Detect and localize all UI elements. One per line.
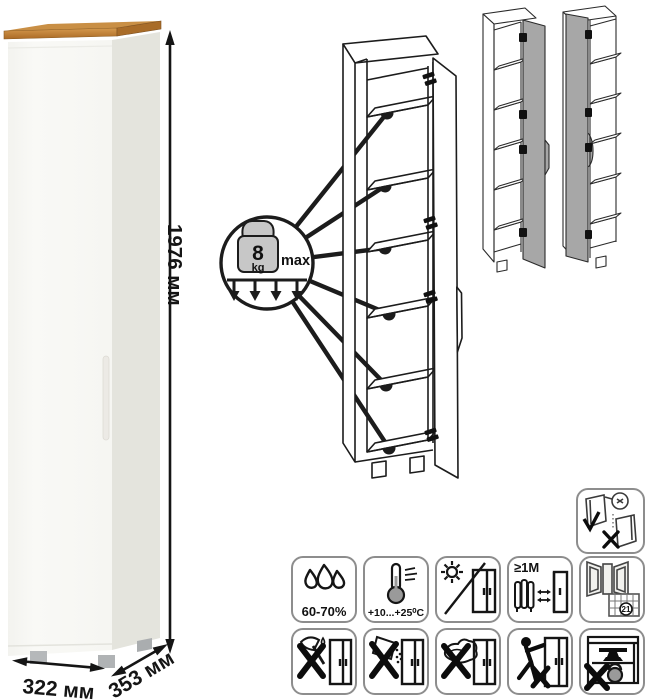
no-dragging-icon — [507, 628, 573, 695]
calendar-day: 21 — [622, 605, 631, 614]
height-dimension-arrow — [165, 30, 174, 654]
no-solvents-icon — [291, 628, 357, 695]
heat-rays — [405, 568, 417, 580]
kettlebell-icon — [608, 664, 622, 682]
door-handle-groove — [103, 356, 109, 440]
radiator-icon — [515, 580, 534, 612]
door-variants — [483, 6, 621, 272]
max-load-callout: 8 kg max — [221, 217, 313, 309]
x-mark — [372, 644, 396, 676]
no-overloading-icon — [579, 628, 645, 695]
cabinet-photo — [4, 21, 161, 668]
x-mark — [587, 666, 607, 688]
sun-icon — [441, 561, 463, 583]
door-panel-correct — [586, 495, 606, 527]
cabinet-leg — [410, 456, 424, 473]
shelf-leader-dots — [379, 107, 396, 455]
max-load-unit: kg — [252, 262, 265, 274]
door-hinged-right-variant — [483, 8, 549, 272]
anvil-icon — [599, 648, 627, 661]
open-door — [433, 58, 462, 478]
door-hinged-left-variant — [563, 6, 621, 268]
no-direct-sunlight-icon — [435, 556, 501, 623]
cabinet-leg — [497, 260, 507, 272]
shelf-load-diagram: 8 kg max — [221, 36, 462, 478]
x-mark — [604, 532, 618, 547]
cabinet-leg — [596, 256, 606, 268]
temperature-range-icon: +10...+25⁰C — [363, 556, 429, 623]
cabinet-side-panel — [112, 32, 160, 650]
max-load-qualifier: max — [281, 253, 310, 269]
open-window-icon — [587, 562, 628, 596]
door-handle — [457, 287, 462, 352]
distance-arrows — [537, 590, 551, 603]
heat-distance-label: ≥1М — [514, 561, 539, 574]
gray-door — [566, 14, 588, 262]
door-alignment-check-icon — [576, 488, 645, 554]
width-dimension-label: 322 мм — [22, 675, 96, 700]
product-sheet: { "product": { "type": "tall-one-door-ca… — [0, 0, 648, 700]
humidity-icon: 60-70% — [291, 556, 357, 623]
x-mark — [444, 646, 468, 676]
wardrobe-glyph — [402, 640, 423, 684]
wardrobe-glyph — [330, 640, 351, 684]
open-cabinet-drawing — [343, 36, 462, 478]
shelf — [367, 96, 436, 452]
wardrobe-glyph — [545, 638, 567, 686]
no-wet-cleaning-icon — [435, 628, 501, 695]
cabinet-leg — [372, 461, 386, 478]
door-handle — [545, 140, 549, 175]
height-dimension-label: 1976 мм — [163, 224, 186, 306]
width-dimension-arrow — [12, 657, 105, 672]
cabinet-foot — [98, 655, 115, 668]
calendar-icon: 21 — [609, 594, 639, 616]
cabinet-door-front — [8, 40, 112, 656]
humidity-label: 60-70% — [293, 605, 355, 618]
heat-source-distance-icon: ≥1М — [507, 556, 573, 623]
ventilation-icon: 21 — [579, 556, 645, 623]
wardrobe-glyph — [554, 572, 567, 612]
wardrobe-glyph — [473, 570, 495, 612]
temperature-label: +10...+25⁰C — [365, 608, 427, 619]
no-abrasive-powder-icon — [363, 628, 429, 695]
